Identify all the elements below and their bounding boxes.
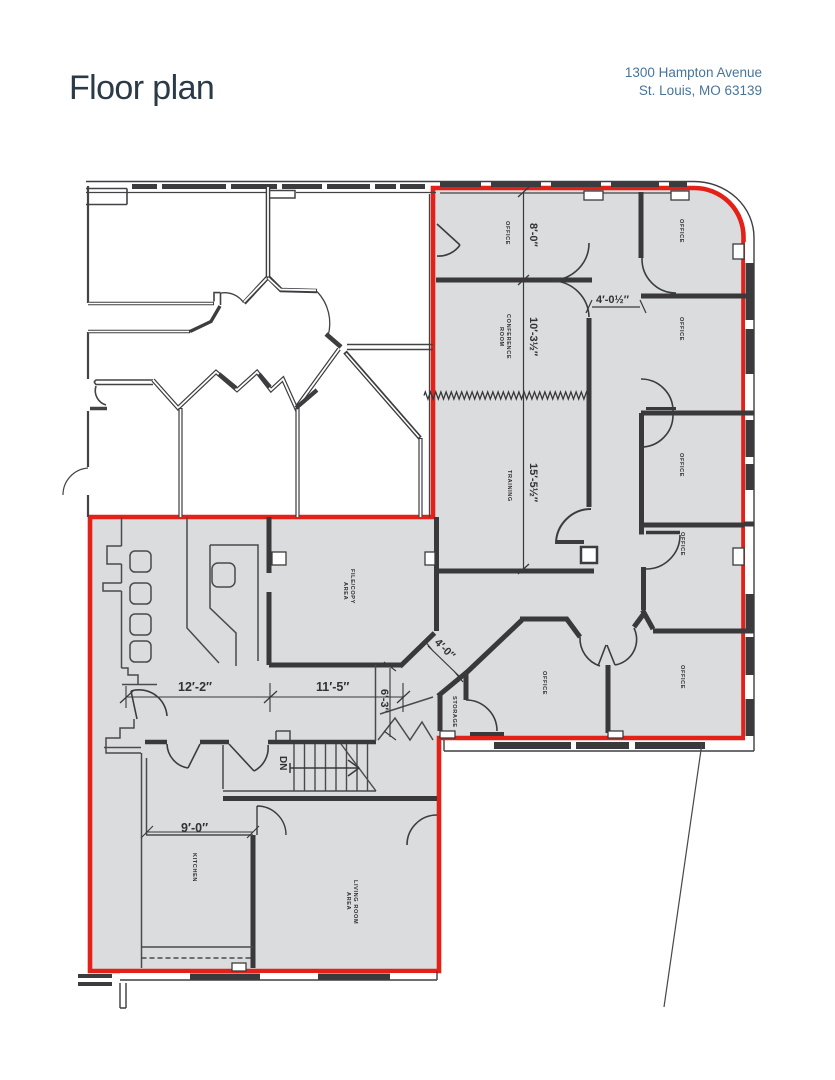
svg-text:OFFICE: OFFICE xyxy=(679,532,685,556)
svg-text:FILE/COPY: FILE/COPY xyxy=(349,569,355,604)
svg-text:10′-3½″: 10′-3½″ xyxy=(527,317,539,357)
svg-text:OFFICE: OFFICE xyxy=(504,221,510,245)
svg-text:OFFICE: OFFICE xyxy=(541,671,547,695)
svg-text:9′-0″: 9′-0″ xyxy=(181,821,208,835)
svg-text:AREA: AREA xyxy=(342,582,348,600)
svg-text:4′-0½″: 4′-0½″ xyxy=(596,294,630,306)
svg-text:12′-2″: 12′-2″ xyxy=(178,680,212,694)
svg-text:ROOM: ROOM xyxy=(498,327,504,347)
svg-text:CONFERENCE: CONFERENCE xyxy=(505,314,511,359)
svg-text:8′-0″: 8′-0″ xyxy=(527,223,539,248)
svg-text:OFFICE: OFFICE xyxy=(678,453,684,477)
svg-text:6′-3″: 6′-3″ xyxy=(378,689,390,714)
svg-text:TRAINING: TRAINING xyxy=(506,470,512,502)
svg-text:15′-5½″: 15′-5½″ xyxy=(527,463,539,503)
svg-text:LIVING ROOM: LIVING ROOM xyxy=(352,880,358,924)
svg-text:AREA: AREA xyxy=(345,892,351,910)
svg-text:DN: DN xyxy=(277,756,288,770)
svg-text:OFFICE: OFFICE xyxy=(678,219,684,243)
svg-text:STORAGE: STORAGE xyxy=(451,696,457,728)
svg-text:OFFICE: OFFICE xyxy=(679,665,685,689)
svg-text:11′-5″: 11′-5″ xyxy=(316,680,349,694)
svg-text:KITCHEN: KITCHEN xyxy=(191,853,197,882)
svg-text:OFFICE: OFFICE xyxy=(678,317,684,341)
